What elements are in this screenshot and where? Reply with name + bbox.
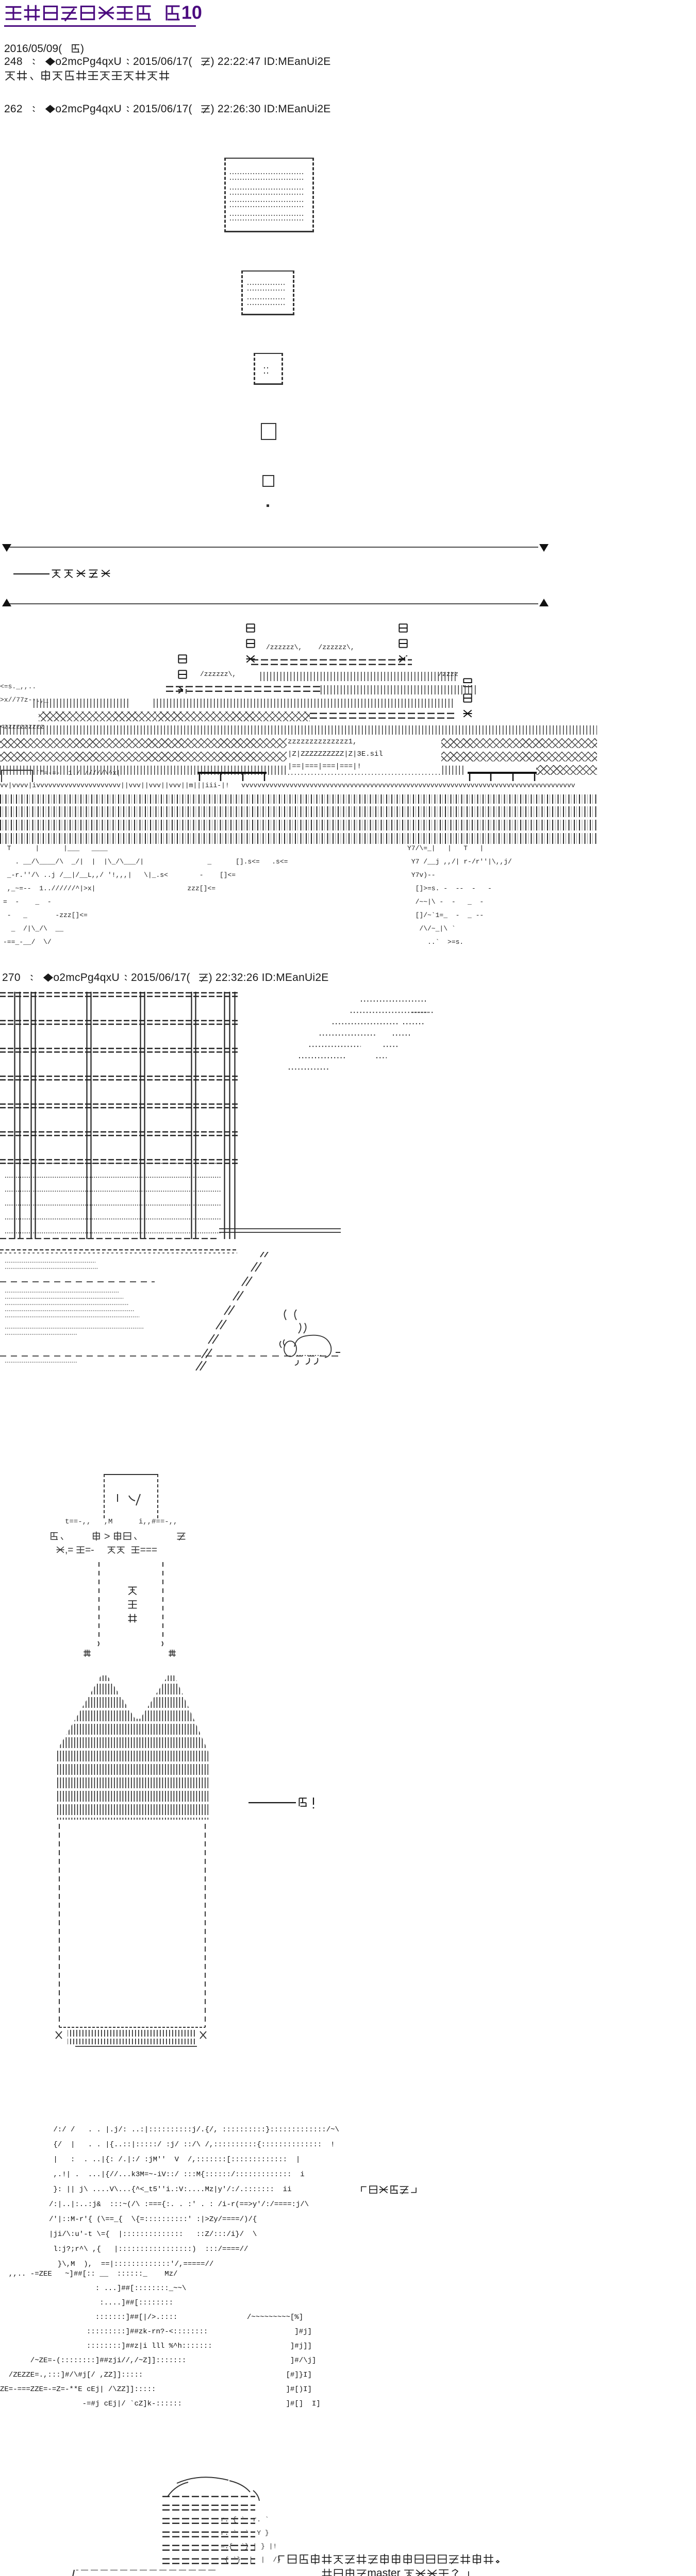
svg-text:262: 262: [4, 104, 26, 115]
svg-text:248: 248: [4, 56, 26, 67]
svg-text:) 22:22:47 ID:MEanUi2E: ) 22:22:47 ID:MEanUi2E: [211, 56, 331, 67]
svg-text:2016/05/09(: 2016/05/09(: [4, 43, 62, 55]
svg-text:) 22:32:26 ID:MEanUi2E: ) 22:32:26 ID:MEanUi2E: [209, 972, 329, 984]
svg-text:) 22:26:30 ID:MEanUi2E: ) 22:26:30 ID:MEanUi2E: [211, 104, 331, 115]
svg-text:,=: ,=: [65, 1545, 73, 1556]
svg-text:2015/06/17(: 2015/06/17(: [133, 56, 192, 67]
svg-text:=-: =-: [85, 1545, 100, 1556]
svg-text:o2mcPg4qxU: o2mcPg4qxU: [55, 104, 125, 115]
svg-text:): ): [80, 43, 84, 55]
svg-text:2015/06/17(: 2015/06/17(: [133, 104, 192, 115]
svg-text:2015/06/17(: 2015/06/17(: [131, 972, 190, 984]
svg-text:o2mcPg4qxU: o2mcPg4qxU: [55, 56, 125, 67]
svg-text:>: >: [101, 1531, 110, 1542]
svg-text:o2mcPg4qxU: o2mcPg4qxU: [53, 972, 123, 984]
svg-text:===: ===: [140, 1545, 157, 1556]
svg-text:10: 10: [181, 4, 202, 23]
svg-text:270: 270: [2, 972, 24, 984]
svg-text:master: master: [367, 2568, 400, 2576]
